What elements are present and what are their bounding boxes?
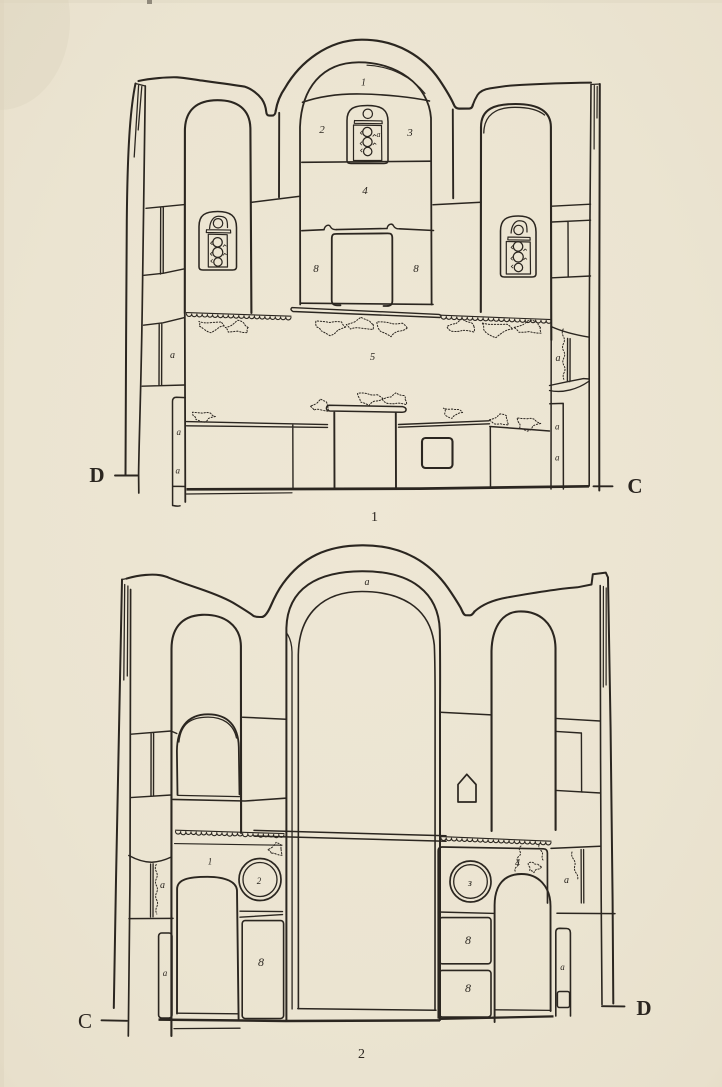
svg-text:a: a (564, 875, 569, 886)
svg-text:a: a (177, 427, 182, 437)
svg-text:a: a (377, 130, 381, 139)
svg-text:4: 4 (362, 185, 368, 197)
svg-text:C: C (78, 1009, 92, 1033)
svg-text:1: 1 (208, 857, 213, 867)
svg-text:8: 8 (465, 933, 471, 947)
svg-text:8: 8 (465, 981, 471, 995)
svg-text:з: з (467, 878, 472, 889)
svg-text:D: D (636, 996, 651, 1020)
svg-text:a: a (160, 880, 165, 891)
svg-text:a: a (555, 422, 560, 432)
svg-text:a: a (163, 968, 168, 978)
svg-text:3: 3 (406, 127, 413, 139)
svg-text:1: 1 (371, 510, 378, 525)
svg-text:a: a (560, 962, 565, 972)
svg-text:a: a (176, 466, 181, 476)
svg-text:2: 2 (319, 124, 325, 136)
svg-text:8: 8 (258, 955, 264, 969)
svg-text:C: C (627, 474, 642, 498)
svg-text:2: 2 (257, 876, 262, 886)
svg-text:a: a (365, 577, 370, 588)
svg-text:5: 5 (370, 352, 375, 363)
svg-text:D: D (89, 463, 104, 487)
svg-text:a: a (555, 453, 560, 463)
svg-text:a: a (170, 350, 175, 361)
svg-text:a: a (556, 353, 561, 364)
svg-text:1: 1 (361, 78, 366, 89)
svg-text:8: 8 (413, 263, 419, 275)
svg-text:2: 2 (358, 1047, 365, 1062)
svg-text:4: 4 (515, 858, 520, 869)
svg-text:8: 8 (313, 263, 319, 275)
